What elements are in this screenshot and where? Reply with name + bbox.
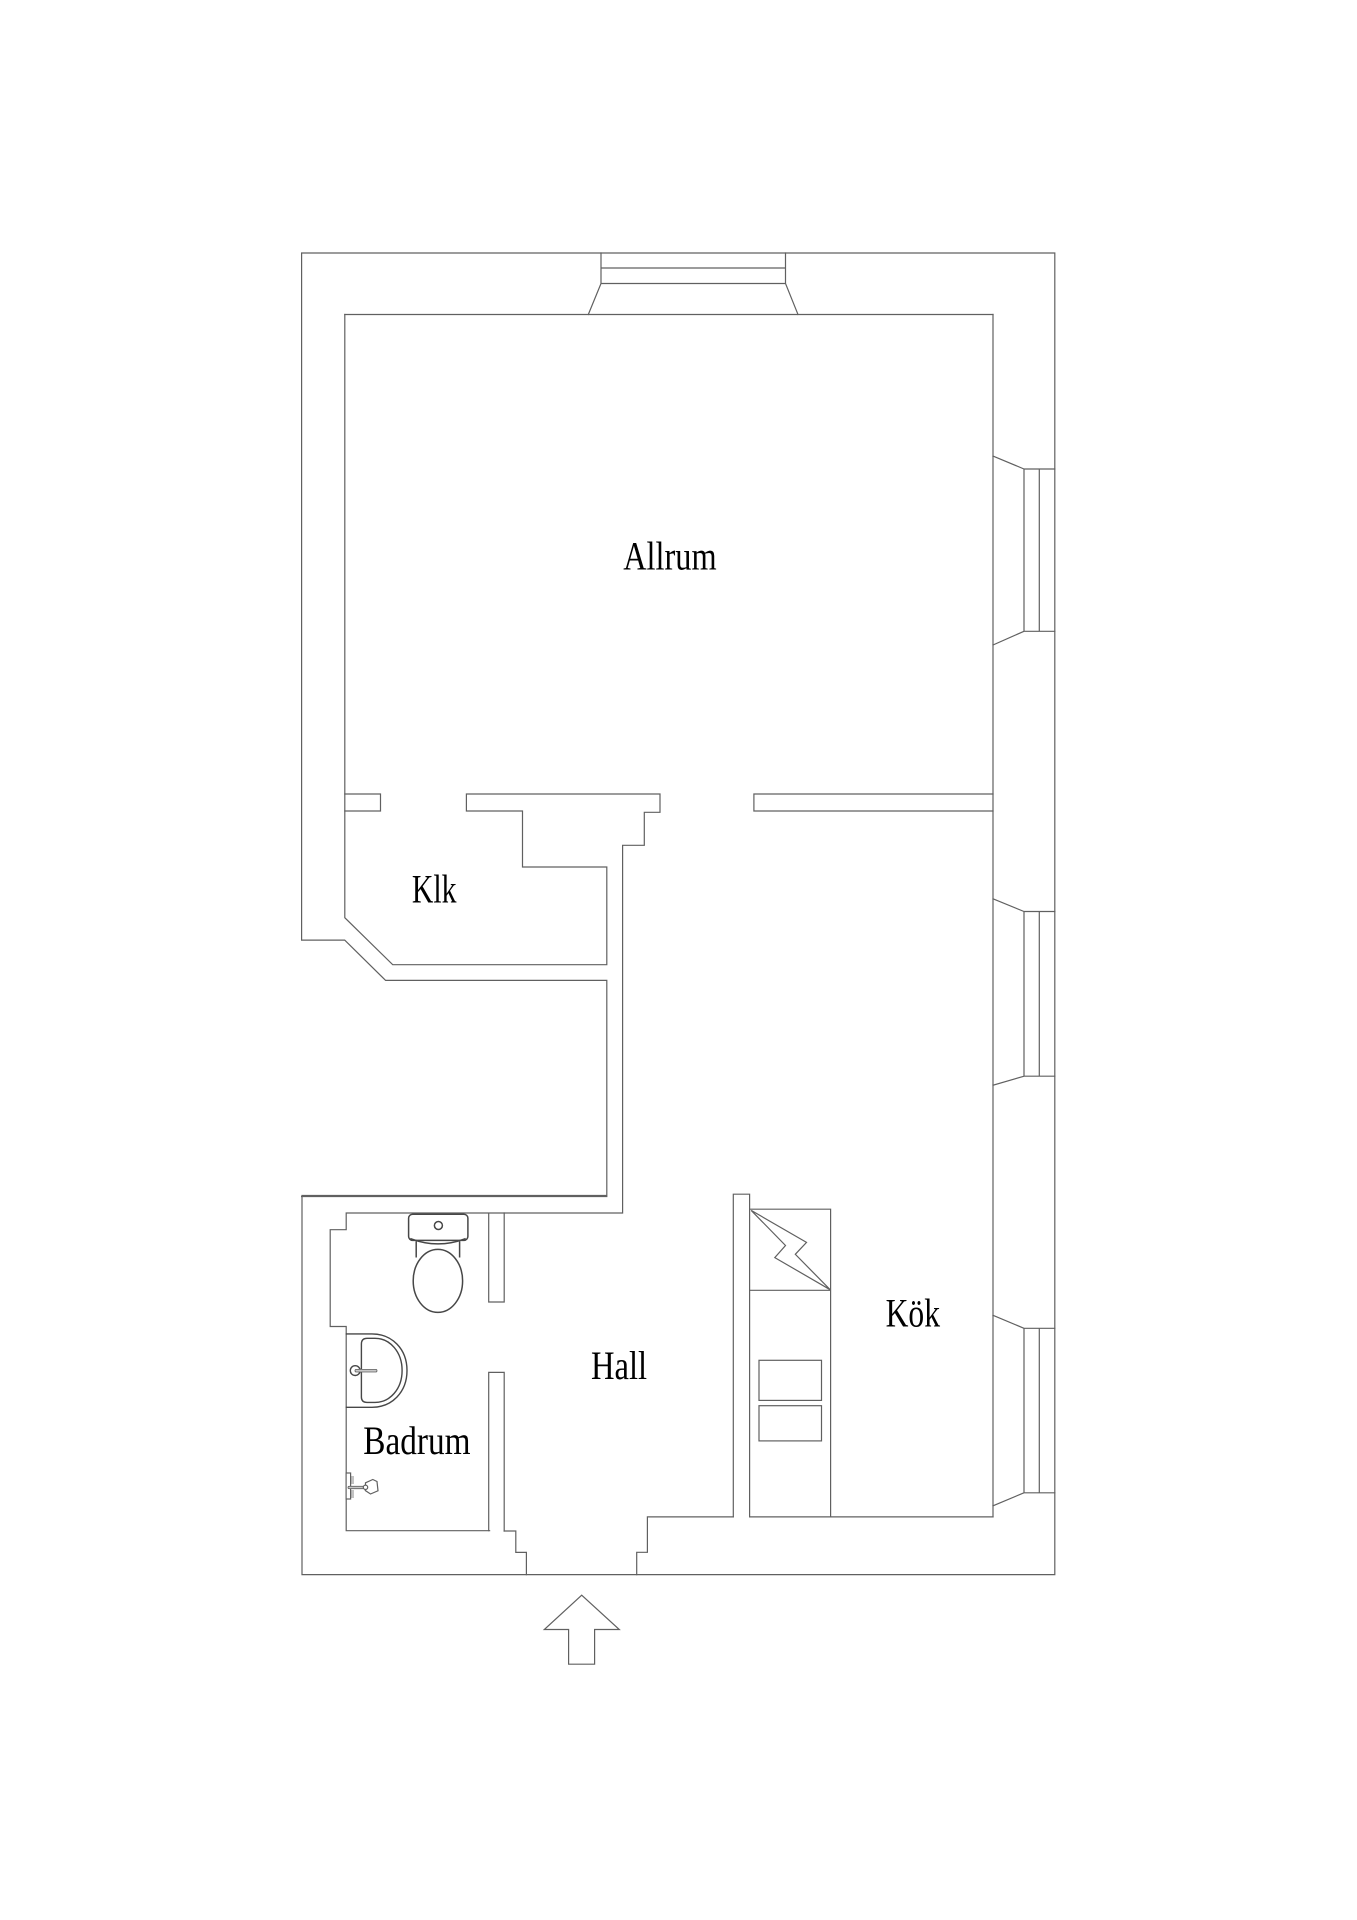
svg-text:Badrum: Badrum — [363, 1418, 470, 1463]
svg-text:Hall: Hall — [591, 1343, 647, 1388]
svg-text:Klk: Klk — [412, 866, 457, 911]
svg-text:Allrum: Allrum — [623, 534, 716, 579]
svg-text:Kök: Kök — [886, 1291, 940, 1336]
